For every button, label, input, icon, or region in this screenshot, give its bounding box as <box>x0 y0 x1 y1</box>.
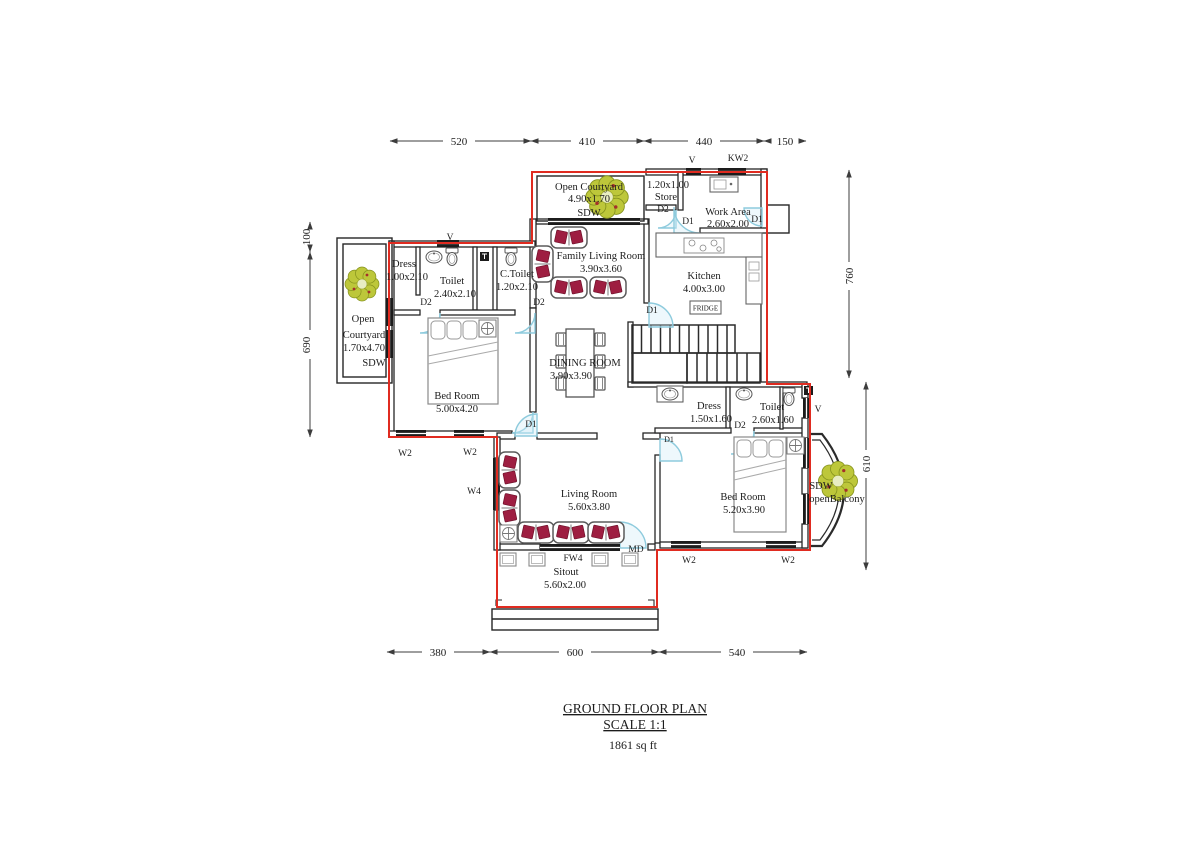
room-size-courtyard-left: 1.70x4.70 <box>343 343 385 354</box>
label-d1: D1 <box>682 217 694 227</box>
label-d2: D2 <box>734 421 746 431</box>
room-size-sitout: 5.60x2.00 <box>544 580 586 591</box>
room-size-family-living: 3.90x3.60 <box>580 264 622 275</box>
window-icon <box>396 430 426 437</box>
room-size-kitchen: 4.00x3.00 <box>683 284 725 295</box>
dim-right-1: 760 <box>844 267 856 284</box>
sofa-icon <box>590 277 626 298</box>
window-icon <box>540 544 620 551</box>
chair-icon <box>592 553 608 566</box>
sofa-icon <box>518 522 554 543</box>
room-label-dining: DINING ROOM <box>549 358 621 369</box>
window-icon <box>766 541 796 548</box>
floor-plan-sheet: 520 410 440 150 380 600 540 100 690 760 … <box>0 0 1200 848</box>
plan-title: GROUND FLOOR PLAN <box>563 701 707 716</box>
corner-table-icon <box>500 525 517 542</box>
wc-icon <box>446 248 458 266</box>
window-label-sdw: SDW <box>809 481 832 492</box>
label-d1: D1 <box>525 420 537 430</box>
label-d1: D1 <box>751 215 763 225</box>
sheet-background <box>0 0 1200 848</box>
dim-left-1: 100 <box>301 228 313 245</box>
tap-icon <box>480 252 489 261</box>
label-d1: D1 <box>646 306 658 316</box>
floor-plan-drawing: 520 410 440 150 380 600 540 100 690 760 … <box>0 0 1200 848</box>
dim-top-2: 410 <box>579 136 596 148</box>
dim-bottom-1: 380 <box>430 647 447 659</box>
room-label-courtyard-left-1: Open <box>352 314 375 325</box>
side-table-icon <box>479 320 496 337</box>
basin-icon <box>426 251 442 263</box>
label-w2: W2 <box>463 448 477 458</box>
label-w2: W2 <box>682 556 696 566</box>
window-icon <box>803 398 810 418</box>
label-kw2: KW2 <box>728 154 749 164</box>
sofa-icon <box>551 227 587 248</box>
label-md: MD <box>628 545 643 555</box>
dim-top-3: 440 <box>696 136 713 148</box>
sofa-icon <box>499 490 520 526</box>
dim-bottom-2: 600 <box>567 647 584 659</box>
room-size-bedroom2: 5.20x3.90 <box>723 505 765 516</box>
room-label-ctoilet: C.Toilet <box>500 269 534 280</box>
dim-top-4: 150 <box>777 136 794 148</box>
room-size-bedroom1: 5.00x4.20 <box>436 404 478 415</box>
room-size-store: 1.20x1.00 <box>647 180 689 191</box>
room-label-store: Store <box>655 192 678 203</box>
room-size-toilet2: 2.60x1.60 <box>752 415 794 426</box>
room-label-kitchen: Kitchen <box>687 271 721 282</box>
label-v: V <box>815 405 822 415</box>
tree-icon <box>345 267 379 301</box>
label-d2: D2 <box>533 298 545 308</box>
window-label-sdw: SDW <box>362 358 385 369</box>
window-icon <box>454 430 484 437</box>
dim-bottom-3: 540 <box>729 647 746 659</box>
room-label-bedroom1: Bed Room <box>434 391 479 402</box>
sofa-icon <box>499 452 520 488</box>
wc-icon <box>505 248 517 266</box>
label-d2: D2 <box>657 205 669 215</box>
dim-right-2: 610 <box>861 455 873 472</box>
tap-icon <box>804 386 813 395</box>
room-label-dress1: Dress <box>392 259 416 270</box>
label-fw4: FW4 <box>564 554 583 564</box>
room-label-living: Living Room <box>561 489 617 500</box>
window-label-sdw: SDW <box>577 208 600 219</box>
room-label-sitout: Sitout <box>553 567 578 578</box>
basin-icon <box>736 388 752 400</box>
window-icon <box>671 541 701 548</box>
sofa-icon <box>588 522 624 543</box>
room-label-family-living: Family Living Room <box>557 251 646 262</box>
dim-top-1: 520 <box>451 136 468 148</box>
label-v: V <box>447 233 454 243</box>
room-size-toilet1: 2.40x2.10 <box>434 289 476 300</box>
sofa-icon <box>551 277 587 298</box>
work-area-step <box>767 205 789 233</box>
label-d1: D1 <box>664 435 674 444</box>
plan-area: 1861 sq ft <box>609 738 658 752</box>
room-size-dress2: 1.50x1.60 <box>690 414 732 425</box>
sofa-icon <box>553 522 589 543</box>
room-label-bedroom2: Bed Room <box>720 492 765 503</box>
chair-icon <box>500 553 516 566</box>
window-icon <box>548 218 640 225</box>
room-label-toilet1: Toilet <box>440 276 464 287</box>
room-label-dress2: Dress <box>697 401 721 412</box>
plan-scale: SCALE 1:1 <box>603 717 666 732</box>
label-w2: W2 <box>398 449 412 459</box>
chair-icon <box>529 553 545 566</box>
room-size-courtyard-top: 4.90x1.70 <box>568 194 610 205</box>
basin-icon <box>662 388 678 400</box>
wc-icon <box>783 388 795 406</box>
counter-sink-icon <box>746 257 762 304</box>
label-w2: W2 <box>781 556 795 566</box>
dim-left-2: 690 <box>301 336 313 353</box>
label-d2: D2 <box>420 298 432 308</box>
fridge-label: FRIDGE <box>693 305 718 313</box>
room-label-courtyard-left-2: Courtyard <box>343 330 386 341</box>
room-label-work-area: Work Area <box>705 207 751 218</box>
room-size-dining: 3.90x3.90 <box>550 371 592 382</box>
room-size-dress1: 1.00x2.10 <box>386 272 428 283</box>
sofa-icon <box>532 246 553 282</box>
side-table-icon <box>787 437 804 454</box>
room-label-courtyard-top: Open Courtyard <box>555 182 624 193</box>
room-label-toilet2: Toilet <box>760 402 784 413</box>
label-w4: W4 <box>467 487 481 497</box>
label-v: V <box>689 156 696 166</box>
room-size-living: 5.60x3.80 <box>568 502 610 513</box>
room-size-work-area: 2.60x2.00 <box>707 219 749 230</box>
room-label-balcony: openBalcony <box>809 494 865 505</box>
room-size-ctoilet: 1.20x2.10 <box>496 282 538 293</box>
